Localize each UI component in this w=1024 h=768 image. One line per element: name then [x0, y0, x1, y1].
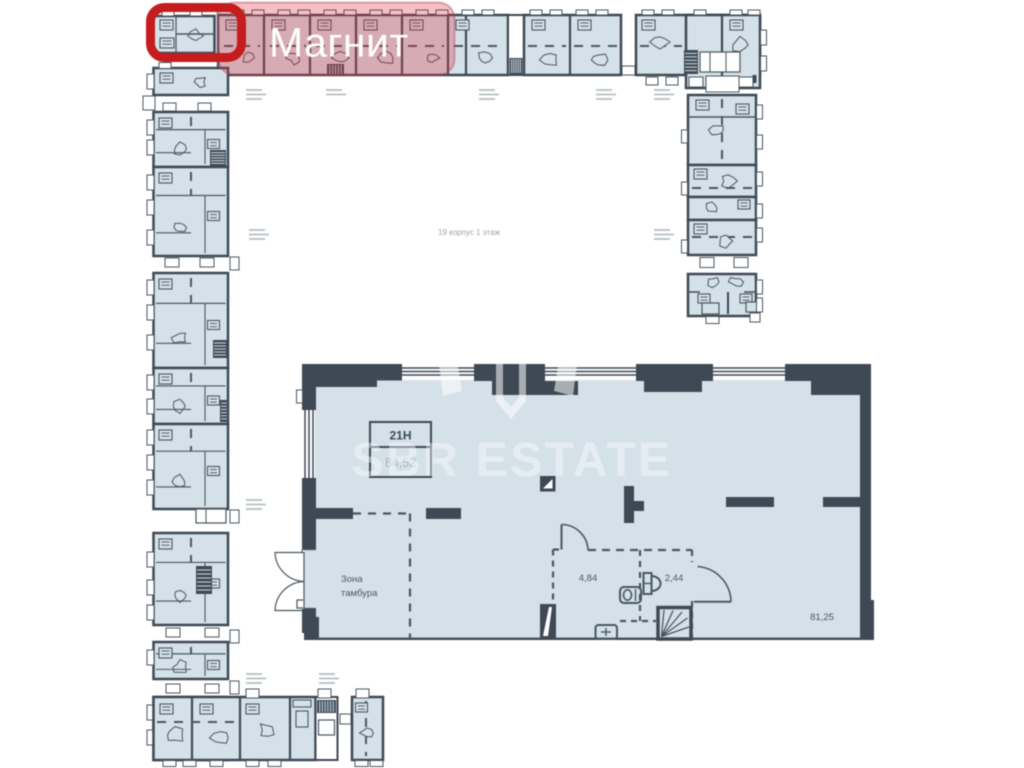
- svg-text:SBR ESTATE: SBR ESTATE: [352, 434, 673, 487]
- svg-text:Зона: Зона: [341, 574, 363, 585]
- svg-text:2,44: 2,44: [665, 573, 684, 584]
- svg-text:тамбура: тамбура: [341, 588, 378, 599]
- svg-text:19 корпус 1 этаж: 19 корпус 1 этаж: [438, 228, 501, 237]
- svg-text:Магнит: Магнит: [269, 20, 409, 66]
- svg-text:81,25: 81,25: [810, 612, 834, 623]
- svg-text:4,84: 4,84: [579, 573, 598, 584]
